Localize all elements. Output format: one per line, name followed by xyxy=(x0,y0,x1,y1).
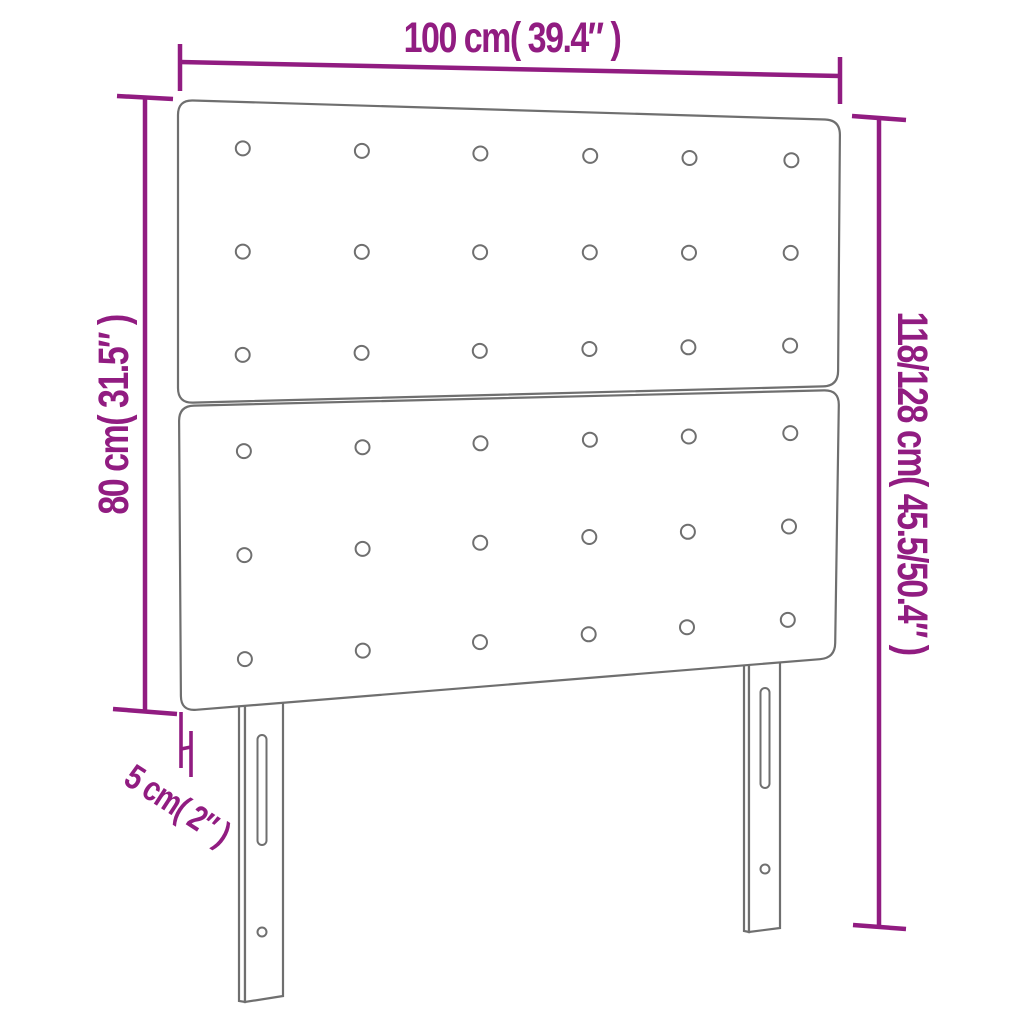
tufting-button xyxy=(237,444,251,458)
tufting-button xyxy=(682,430,696,444)
board-height-tick-bottom xyxy=(113,709,177,714)
left-leg-mounting-slot xyxy=(258,735,267,845)
total-height-tick-bottom xyxy=(853,925,906,929)
left-leg xyxy=(239,695,283,1002)
tufting-button xyxy=(473,344,487,358)
tufting-button xyxy=(236,348,250,362)
depth-dimension-label: 5 cm( 2″ ) xyxy=(118,756,238,853)
right-leg-screw-hole xyxy=(761,865,770,874)
tufting-button xyxy=(681,525,695,539)
tufting-button xyxy=(238,652,252,666)
tufting-button xyxy=(355,346,369,360)
headboard-lower-panel xyxy=(179,390,839,709)
tufting-button xyxy=(237,548,251,562)
tufting-button xyxy=(473,536,487,550)
tufting-button xyxy=(784,153,798,167)
depth-dimension-line xyxy=(181,747,191,749)
board-height-dimension-label: 80 cm( 31.5″ ) xyxy=(90,315,137,514)
tufting-button xyxy=(783,426,797,440)
width-dimension-line xyxy=(180,62,840,76)
tufting-button xyxy=(356,644,370,658)
tufting-button xyxy=(683,151,697,165)
tufting-button xyxy=(474,436,488,450)
tufting-button xyxy=(582,342,596,356)
tufting-button xyxy=(783,339,797,353)
tufting-button xyxy=(582,627,596,641)
tufting-button xyxy=(682,246,696,260)
tufting-button xyxy=(356,542,370,556)
tufting-button xyxy=(784,246,798,260)
diagram-stage: 100 cm( 39.4″ ) 80 cm( 31.5″ ) 118/128 c… xyxy=(0,0,1024,1024)
tufting-button xyxy=(583,245,597,259)
left-leg-screw-hole xyxy=(258,928,267,937)
tufting-button xyxy=(583,149,597,163)
tufting-button xyxy=(473,635,487,649)
tufting-button xyxy=(236,245,250,259)
total-height-dimension-label: 118/128 cm( 45.5/50.4″ ) xyxy=(888,311,935,654)
width-dimension: 100 cm( 39.4″ ) xyxy=(180,14,840,104)
tufting-button xyxy=(680,620,694,634)
board-height-tick-top xyxy=(117,96,173,99)
right-leg-mounting-slot xyxy=(761,688,770,788)
tufting-button xyxy=(582,530,596,544)
tufting-button xyxy=(583,433,597,447)
headboard-dimension-diagram: 100 cm( 39.4″ ) 80 cm( 31.5″ ) 118/128 c… xyxy=(0,0,1024,1024)
tufting-button xyxy=(681,340,695,354)
tufting-button xyxy=(355,245,369,259)
tufting-button xyxy=(236,141,250,155)
tufting-button xyxy=(356,440,370,454)
headboard-upper-panel xyxy=(178,100,840,402)
board-height-dimension: 80 cm( 31.5″ ) xyxy=(90,96,177,714)
tufting-button xyxy=(355,144,369,158)
tufting-button xyxy=(781,613,795,627)
tufting-button xyxy=(473,147,487,161)
tufting-button xyxy=(473,245,487,259)
width-dimension-label: 100 cm( 39.4″ ) xyxy=(404,14,621,61)
total-height-tick-top xyxy=(852,116,906,120)
total-height-dimension: 118/128 cm( 45.5/50.4″ ) xyxy=(852,116,936,929)
right-leg xyxy=(744,654,780,932)
tufting-button xyxy=(782,520,796,534)
depth-dimension: 5 cm( 2″ ) xyxy=(118,712,238,853)
